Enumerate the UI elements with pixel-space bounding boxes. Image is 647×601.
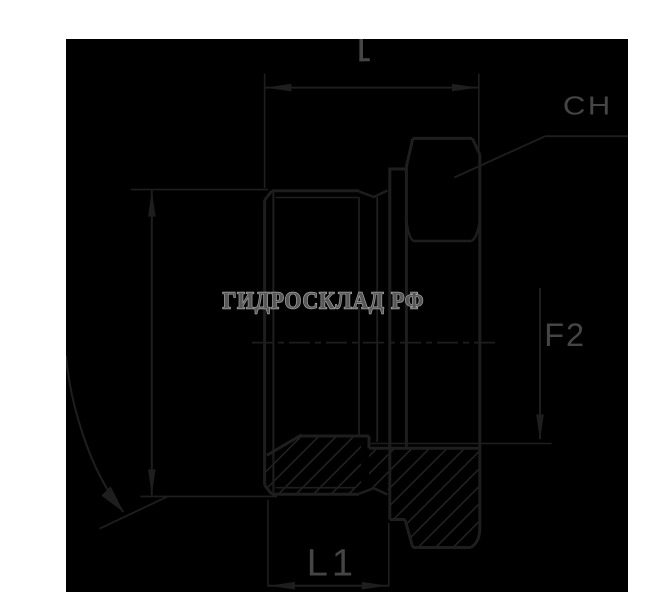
svg-text:L1: L1: [307, 543, 357, 585]
svg-text:F2: F2: [544, 317, 586, 353]
svg-text:ГИДРОСКЛАД РФ: ГИДРОСКЛАД РФ: [223, 287, 425, 313]
svg-text:CH: CH: [563, 92, 613, 121]
